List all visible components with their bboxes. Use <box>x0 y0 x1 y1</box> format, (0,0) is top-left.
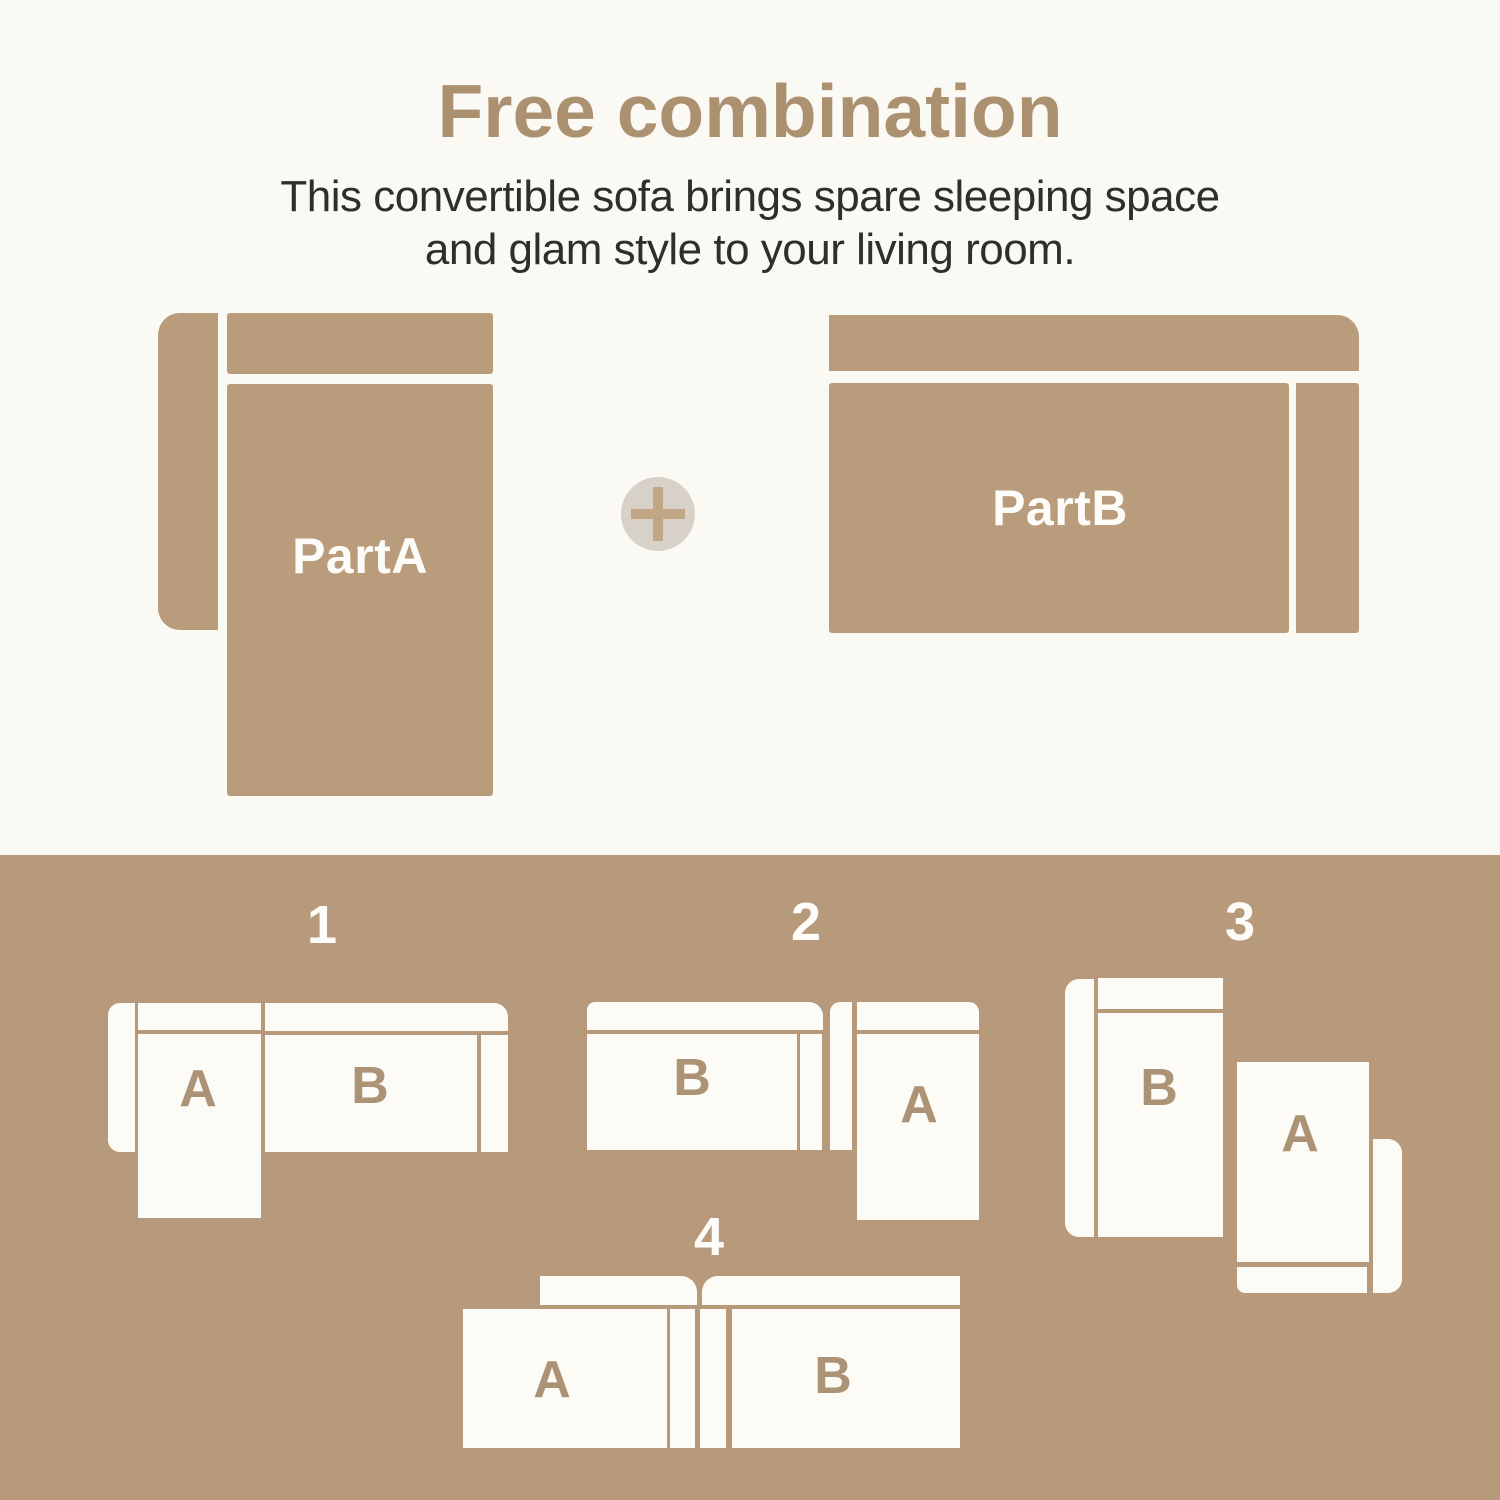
combo3-a-backrest <box>1237 1267 1367 1293</box>
combination-3-number: 3 <box>1225 891 1255 953</box>
part-b-label: PartB <box>992 479 1128 537</box>
combo1-b-backrest <box>265 1003 508 1031</box>
combo2-a-backrest <box>857 1002 979 1030</box>
part-a-backrest <box>227 313 493 374</box>
combo2-b-backrest <box>587 1002 823 1030</box>
combo4-b-backrest <box>702 1276 960 1305</box>
combo4-letter-a: A <box>533 1350 571 1410</box>
combo1-b-armrest <box>481 1035 508 1152</box>
combo3-a-armrest <box>1373 1139 1402 1293</box>
combo1-letter-a: A <box>179 1059 217 1119</box>
combination-4-number: 4 <box>694 1206 724 1268</box>
subtitle-line-1: This convertible sofa brings spare sleep… <box>280 172 1219 221</box>
combo2-b-armrest <box>800 1034 822 1150</box>
part-a-seat <box>227 384 493 796</box>
combo1-armrest-left <box>108 1003 135 1152</box>
top-section: Free combination This convertible sofa b… <box>0 0 1500 855</box>
combination-2-number: 2 <box>791 891 821 953</box>
page-title: Free combination <box>0 68 1500 154</box>
part-a-armrest <box>158 313 218 630</box>
combo2-a-armrest <box>830 1002 852 1150</box>
combo3-b-backrest <box>1098 978 1223 1009</box>
sofa-combination-infographic: Free combination This convertible sofa b… <box>0 0 1500 1500</box>
subtitle: This convertible sofa brings spare sleep… <box>0 170 1500 276</box>
combo4-a-armrest <box>670 1309 695 1448</box>
combo3-letter-a: A <box>1281 1104 1319 1164</box>
plus-icon <box>621 477 695 551</box>
combo1-a-backrest <box>138 1003 261 1030</box>
combo2-letter-a: A <box>900 1075 938 1135</box>
part-b-backrest <box>829 315 1359 371</box>
plus-icon-vertical-bar <box>653 487 663 541</box>
combo4-letter-b: B <box>814 1346 852 1406</box>
combo3-letter-b: B <box>1140 1058 1178 1118</box>
part-b-armrest <box>1296 383 1359 633</box>
combo4-a-backrest <box>540 1276 697 1305</box>
combo3-b-seat <box>1098 1013 1223 1237</box>
subtitle-line-2: and glam style to your living room. <box>425 225 1075 274</box>
part-a-label: PartA <box>292 527 428 585</box>
combo1-letter-b: B <box>351 1056 389 1116</box>
combo2-letter-b: B <box>673 1048 711 1108</box>
combo3-b-armrest <box>1065 979 1094 1237</box>
combo4-b-armrest <box>700 1309 726 1448</box>
combination-1-number: 1 <box>307 894 337 956</box>
